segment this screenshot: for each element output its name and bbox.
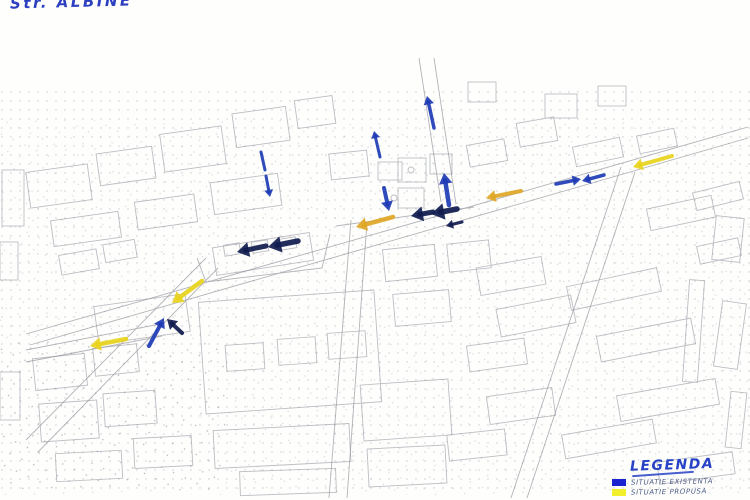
scanned-site-plan: Str. ALBINE LEGENDA SITUATIE EXISTENTA S… — [0, 0, 750, 500]
proposed-color-swatch — [612, 489, 626, 496]
legend: LEGENDA SITUATIE EXISTENTA SITUATIE PROP… — [612, 458, 732, 498]
map-linework — [0, 0, 750, 500]
proposed-label: SITUATIE PROPUSA — [631, 487, 707, 496]
existing-label: SITUATIE EXISTENTA — [631, 477, 713, 486]
legend-row-proposed: SITUATIE PROPUSA — [612, 488, 732, 496]
existing-color-swatch — [612, 479, 626, 486]
scan-speckle-3 — [0, 340, 225, 490]
legend-row-existing: SITUATIE EXISTENTA — [612, 478, 732, 486]
